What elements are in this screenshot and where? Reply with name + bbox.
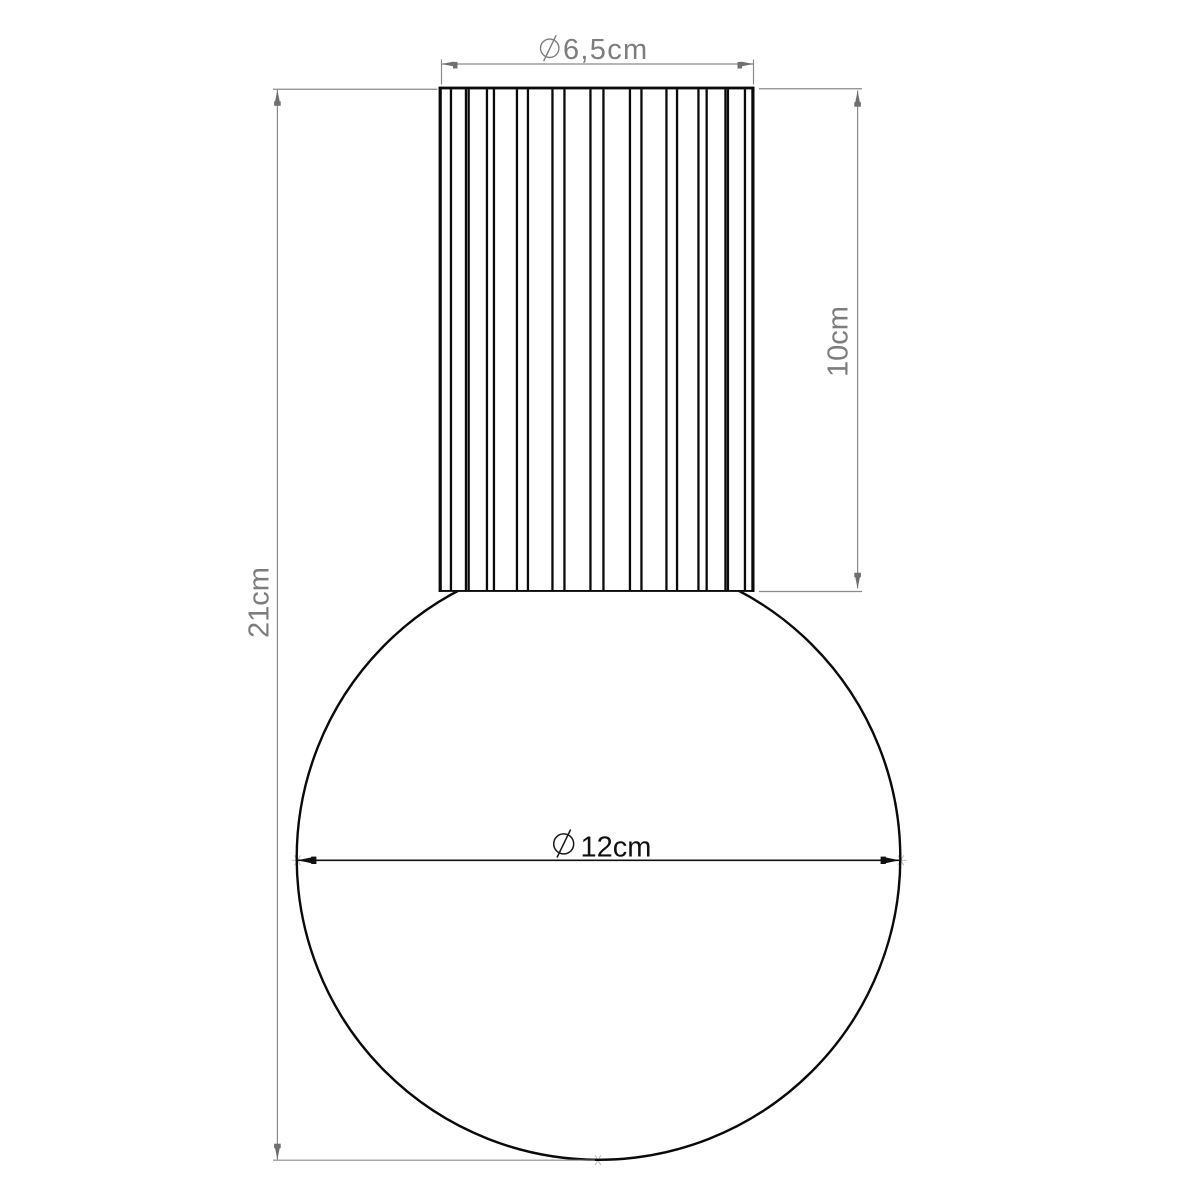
svg-text:6,5cm: 6,5cm: [563, 34, 648, 66]
svg-text:12cm: 12cm: [581, 832, 652, 864]
svg-text:10cm: 10cm: [823, 306, 855, 377]
svg-text:21cm: 21cm: [244, 567, 276, 638]
